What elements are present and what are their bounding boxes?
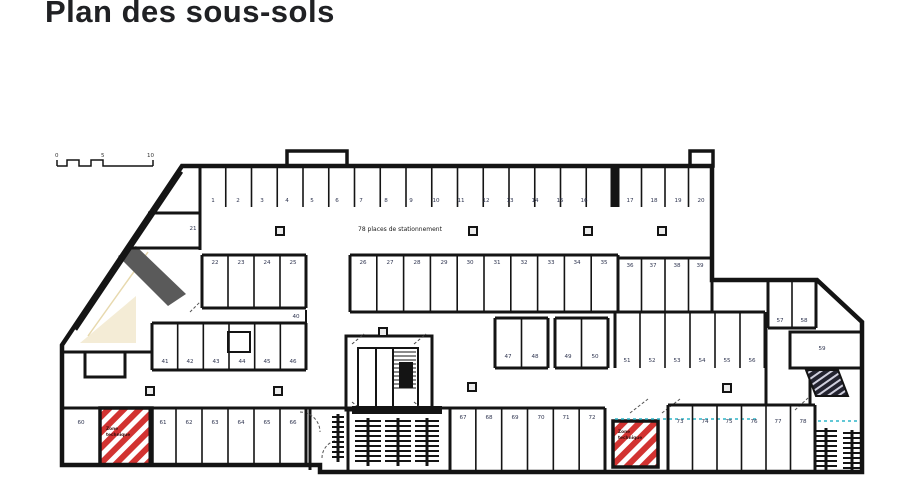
hatched-zone-right-text-line1: Zone <box>618 429 630 435</box>
stall-number: 7 <box>359 198 363 204</box>
stall-number: 31 <box>493 260 501 266</box>
hatched-zone-right-text-line2: technique <box>618 435 642 441</box>
stall-number: 77 <box>774 419 782 425</box>
elevator-shaft <box>399 362 413 388</box>
stall-number: 57 <box>776 318 784 324</box>
parking-row <box>615 312 765 368</box>
stall-number: 24 <box>263 260 271 266</box>
stall-number: 30 <box>466 260 474 266</box>
hatched-zone-right: Zone technique <box>613 421 658 467</box>
stall-number: 5 <box>310 198 314 204</box>
stall-number: 35 <box>600 260 608 266</box>
scale-label-0: 0 <box>55 153 59 159</box>
bike-rack <box>815 428 837 472</box>
column <box>469 227 477 235</box>
parking-row <box>768 281 816 328</box>
column <box>658 227 666 235</box>
stall-number: 74 <box>701 419 709 425</box>
stall-number: 44 <box>238 359 246 365</box>
stall-number: 13 <box>506 198 514 204</box>
capacity-note: 78 places de stationnement <box>358 226 443 233</box>
stall-number: 55 <box>723 358 731 364</box>
stall-number: 65 <box>263 420 271 426</box>
scale-bar: 0 5 10 <box>55 153 154 166</box>
stall-number: 62 <box>185 420 192 426</box>
stall-number: 34 <box>573 260 581 266</box>
stall-number: 53 <box>673 358 681 364</box>
parking-row <box>150 408 306 465</box>
stall-number: 32 <box>520 260 527 266</box>
stall-number: 15 <box>556 198 564 204</box>
stall-number: 2 <box>236 198 240 204</box>
stall-number: 17 <box>626 198 634 204</box>
stall-number: 69 <box>511 415 519 421</box>
parking-row <box>450 408 605 470</box>
stall-number: 26 <box>359 260 367 266</box>
stall-number: 49 <box>564 354 572 360</box>
column <box>274 387 282 395</box>
stall-number: 71 <box>562 415 570 421</box>
stall-number: 68 <box>485 415 493 421</box>
stall-number: 70 <box>537 415 545 421</box>
stall-number: 52 <box>648 358 655 364</box>
stall-number: 73 <box>676 419 684 425</box>
bike-rack <box>385 418 411 466</box>
stall-number: 45 <box>263 359 271 365</box>
stall-number: 18 <box>650 198 658 204</box>
hatched-zone-left: Zone technique <box>100 408 152 465</box>
column <box>379 328 387 336</box>
stall-number: 56 <box>748 358 756 364</box>
stall-number: 23 <box>237 260 245 266</box>
stall-number: 36 <box>626 263 634 269</box>
stall-number: 3 <box>260 198 264 204</box>
stall-number: 63 <box>211 420 219 426</box>
stall-number: 39 <box>696 263 704 269</box>
stall-number: 28 <box>413 260 421 266</box>
stall-number: 1 <box>211 198 215 204</box>
stall-number: 19 <box>674 198 682 204</box>
stall-number: 22 <box>211 260 218 266</box>
stall-number: 48 <box>531 354 539 360</box>
hatched-zone-left-text-line2: technique <box>106 432 130 438</box>
stall-number: 72 <box>588 415 595 421</box>
stall-number: 76 <box>750 419 758 425</box>
stall-number: 54 <box>698 358 706 364</box>
column <box>276 227 284 235</box>
stall-number: 50 <box>591 354 599 360</box>
column <box>584 227 592 235</box>
bike-rack <box>843 430 861 472</box>
stall-number: 20 <box>697 198 705 204</box>
stall-number: 47 <box>504 354 512 360</box>
ramp-top-left <box>118 246 186 306</box>
stall-number: 78 <box>799 419 807 425</box>
parking-row <box>152 323 306 370</box>
stall-number: 10 <box>432 198 440 204</box>
stall-number: 60 <box>77 420 85 426</box>
stall-number: 61 <box>159 420 167 426</box>
stall-number: 43 <box>212 359 220 365</box>
stall-number: 58 <box>800 318 808 324</box>
bike-rack <box>355 418 381 466</box>
parking-row <box>62 408 100 465</box>
hatched-zone-left-text-line1: Zone <box>106 426 118 432</box>
column <box>146 387 154 395</box>
stall-number: 27 <box>386 260 394 266</box>
bike-racks <box>332 406 861 472</box>
stall-number: 64 <box>237 420 245 426</box>
scale-label-5: 5 <box>101 153 105 159</box>
page: Plan des sous-sols Zone technique <box>0 0 900 500</box>
scale-label-10: 10 <box>147 153 154 159</box>
bike-rack <box>415 418 439 466</box>
stall-number: 59 <box>818 346 826 352</box>
stall-number: 6 <box>335 198 339 204</box>
stall-number: 51 <box>623 358 631 364</box>
stall-number: 37 <box>649 263 657 269</box>
stall-number: 25 <box>289 260 297 266</box>
stall-number: 14 <box>531 198 539 204</box>
stall-number: 75 <box>725 419 733 425</box>
stall-number: 41 <box>161 359 169 365</box>
ramp-bottom-right <box>806 370 848 396</box>
stall-number: 8 <box>384 198 388 204</box>
column <box>468 383 476 391</box>
bike-rack <box>332 414 344 462</box>
stall-number: 42 <box>186 359 193 365</box>
stair-core <box>346 334 432 412</box>
stall-number: 33 <box>547 260 555 266</box>
stall-number: 16 <box>580 198 588 204</box>
stall-number: 46 <box>289 359 297 365</box>
column <box>723 384 731 392</box>
basement-floor-plan: Zone technique Zone technique <box>0 0 900 500</box>
stall-number: 40 <box>292 314 300 320</box>
stall-number: 38 <box>673 263 681 269</box>
stall-number: 66 <box>289 420 297 426</box>
parking-row <box>668 405 815 470</box>
bike-rack-wall <box>352 406 442 414</box>
stall-number: 9 <box>409 198 413 204</box>
stall-number: 12 <box>482 198 489 204</box>
stall-number: 29 <box>440 260 448 266</box>
parking-row <box>495 318 548 368</box>
core-door-swings <box>352 334 426 412</box>
stall-number: 21 <box>189 226 197 232</box>
parking-row <box>555 318 608 368</box>
stall-number: 11 <box>457 198 465 204</box>
stall-number: 67 <box>459 415 467 421</box>
stall-number: 4 <box>285 198 289 204</box>
